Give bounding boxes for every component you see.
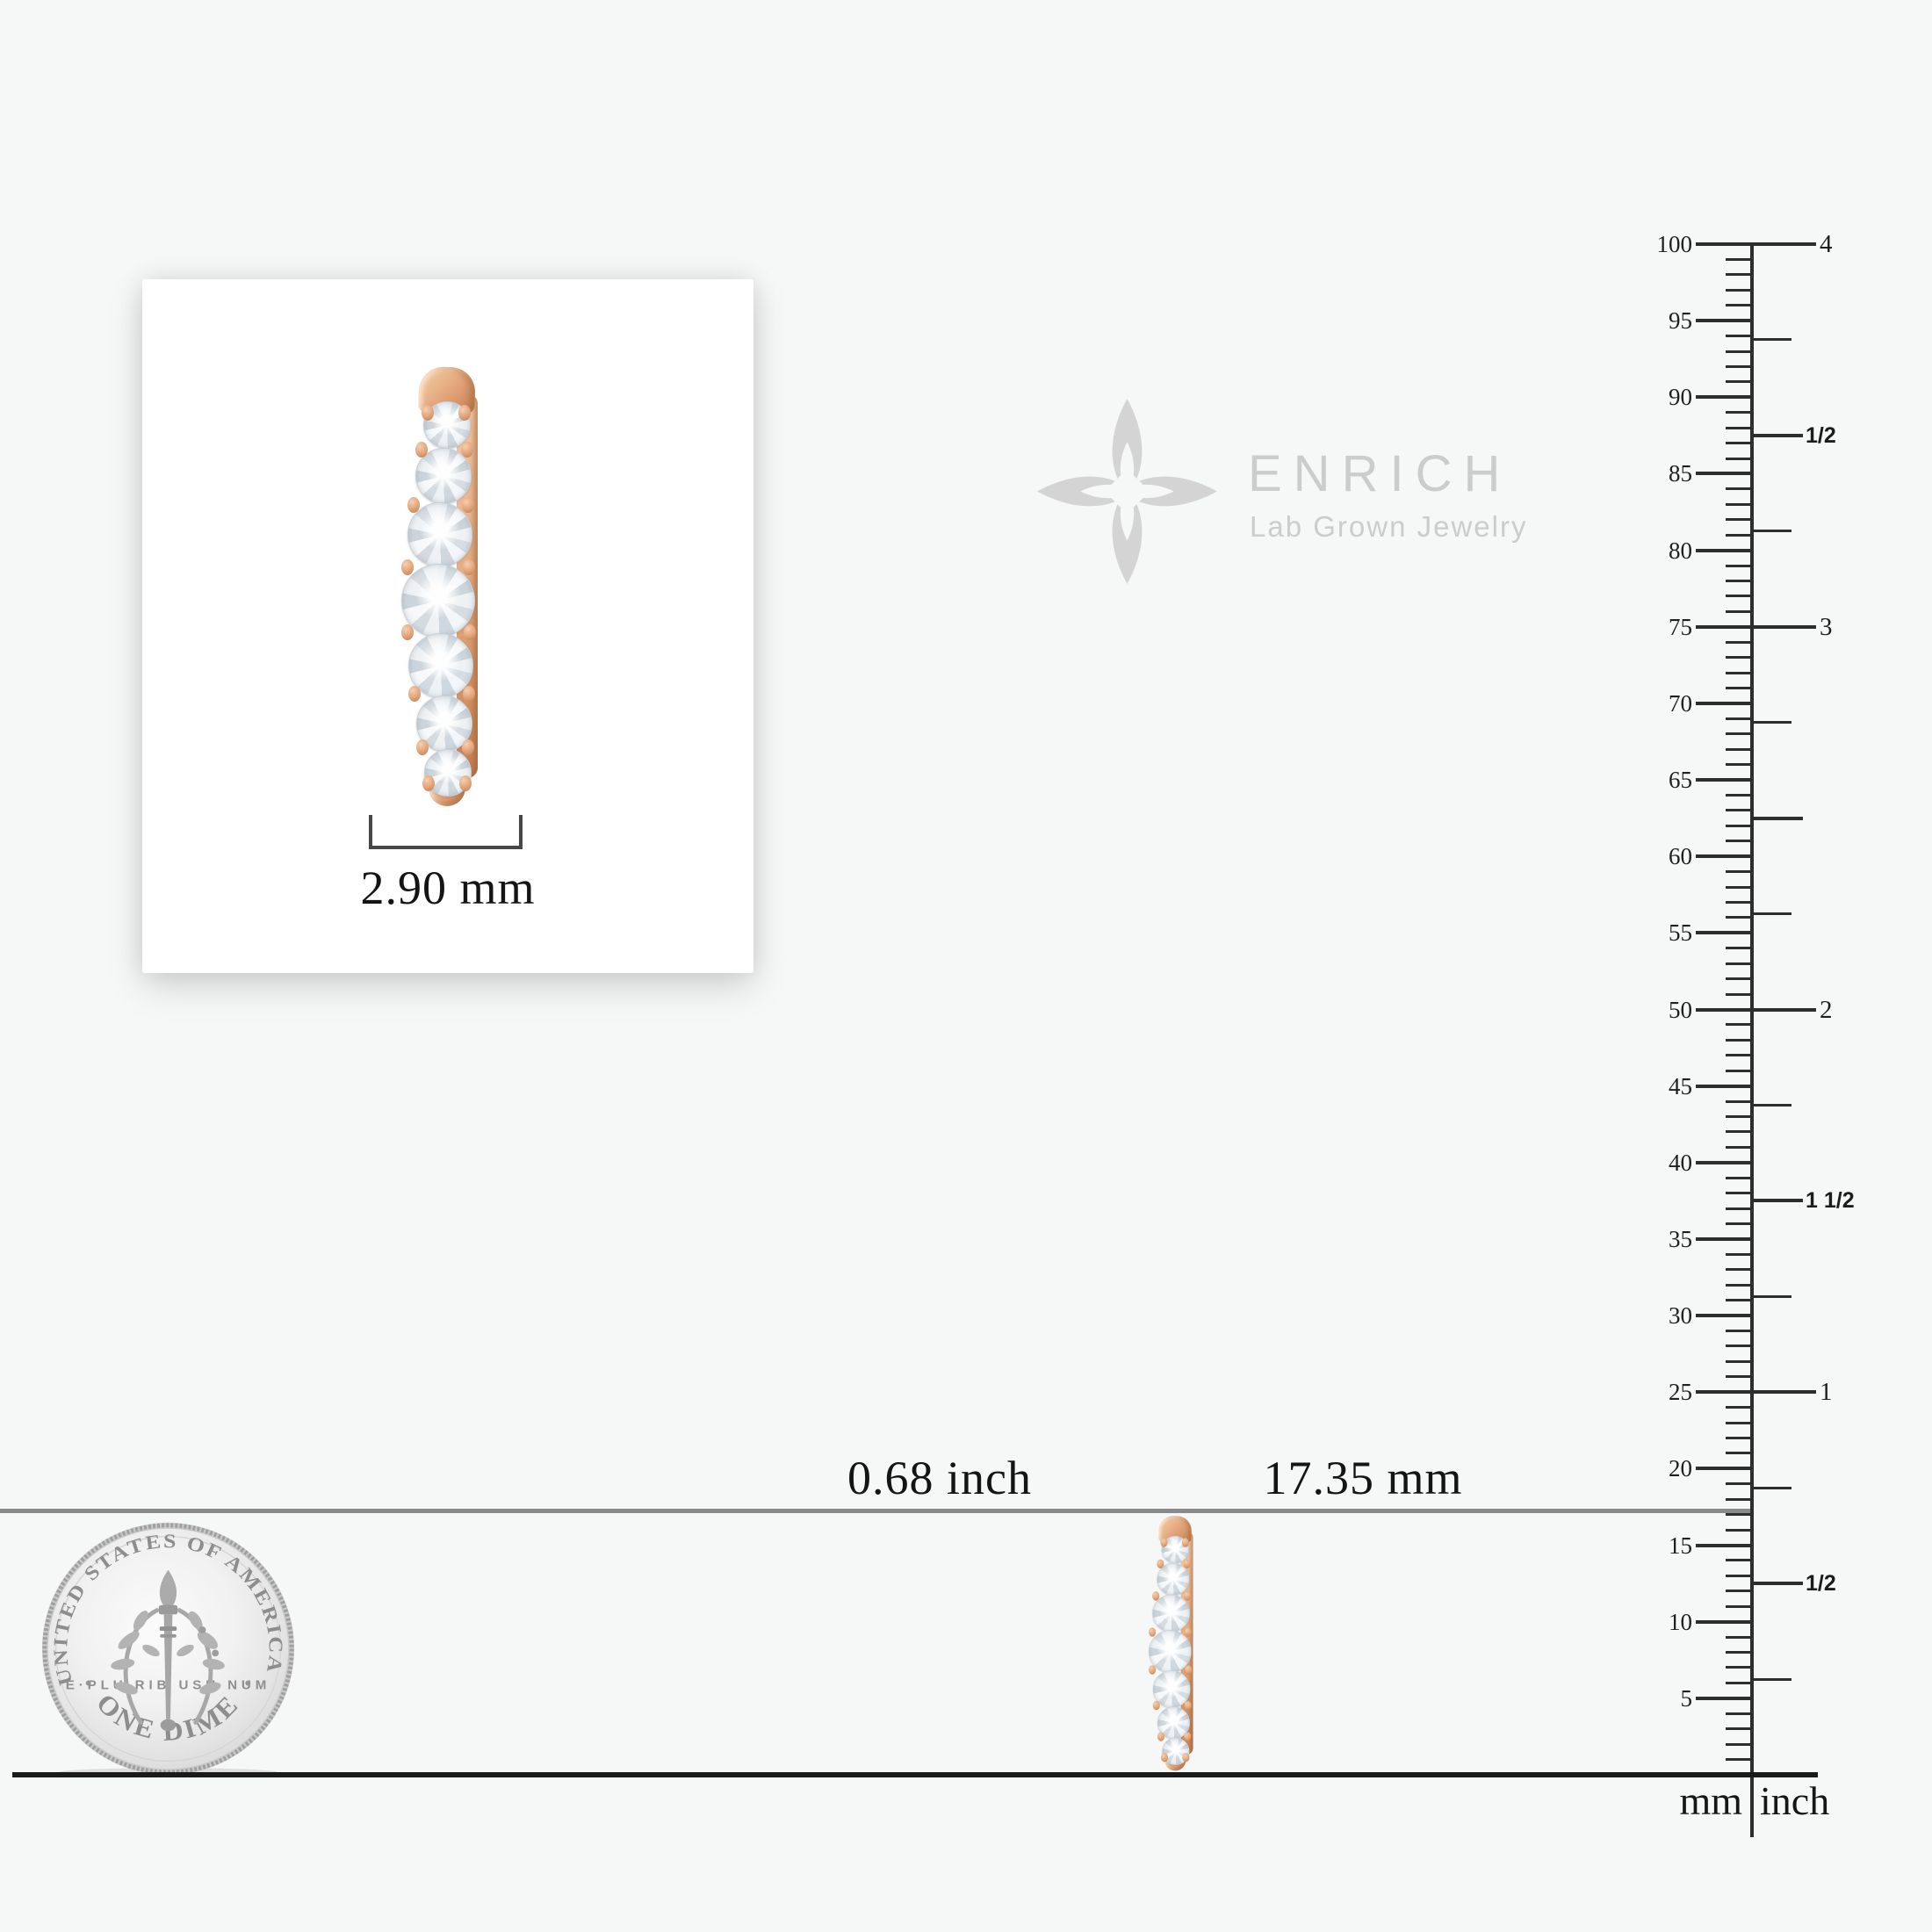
ruler-mm-minor-tick (1726, 1344, 1752, 1347)
ruler-mm-minor-tick (1726, 1330, 1752, 1332)
ruler-unit-inch: inch (1760, 1781, 1829, 1821)
baseline (12, 1772, 1818, 1777)
ruler-inch-quarter-tick (1752, 338, 1791, 341)
ruler-mm-minor-tick (1726, 380, 1752, 383)
ruler-mm-minor-tick (1726, 565, 1752, 567)
ruler-mm-number: 60 (1604, 845, 1692, 869)
ruler-mm-minor-tick (1726, 870, 1752, 873)
ruler-mm-minor-tick (1726, 1529, 1752, 1532)
ruler-mm-minor-tick (1726, 794, 1752, 797)
ruler-inch-quarter-tick (1752, 1295, 1791, 1298)
earring-prong (1184, 1591, 1191, 1600)
ruler-mm-major-tick (1696, 625, 1752, 629)
ruler-mm-minor-tick (1726, 1498, 1752, 1501)
earring-diamond (407, 502, 472, 567)
ruler-mm-minor-tick (1726, 610, 1752, 613)
ruler-inch-fraction: 1 1/2 (1806, 1190, 1855, 1212)
earring-prong (1161, 1753, 1168, 1762)
ruler-mm-minor-tick (1726, 304, 1752, 306)
ruler-mm-number: 65 (1604, 768, 1692, 792)
ruler-inch-number: 1 (1820, 1380, 1833, 1405)
brand-flower-icon (1037, 397, 1217, 586)
ruler-mm-minor-tick (1726, 487, 1752, 490)
height-reference-line (0, 1509, 1750, 1513)
ruler-mm-minor-tick (1726, 442, 1752, 444)
width-measure-bracket (369, 815, 523, 849)
ruler-mm-number: 85 (1604, 462, 1692, 486)
earring-photo-large (395, 364, 492, 811)
ruler-mm-number: 95 (1604, 309, 1692, 333)
ruler-mm-minor-tick (1726, 595, 1752, 597)
ruler-mm-minor-tick (1726, 1146, 1752, 1149)
ruler-inch-half-tick (1752, 817, 1803, 820)
ruler-mm-minor-tick (1726, 840, 1752, 842)
ruler-mm-minor-tick (1726, 825, 1752, 827)
ruler-mm-minor-tick (1726, 993, 1752, 996)
ruler-mm-minor-tick (1726, 1360, 1752, 1363)
earring-prong (1185, 1665, 1192, 1674)
ruler-mm-minor-tick (1726, 1575, 1752, 1577)
ruler-mm-minor-tick (1726, 1070, 1752, 1072)
ruler-inch-fraction: 1/2 (1806, 425, 1836, 447)
earring-diamond (401, 564, 475, 638)
ruler-mm-minor-tick (1726, 1268, 1752, 1271)
ruler-mm-major-tick (1696, 1314, 1752, 1317)
ruler-mm-major-tick (1696, 1161, 1752, 1164)
ruler-mm-minor-tick (1726, 1115, 1752, 1118)
earring-prong (1157, 1732, 1164, 1741)
earring-prong (1160, 1538, 1167, 1546)
ruler-mm-minor-tick (1726, 1590, 1752, 1592)
earring-prong (401, 624, 414, 640)
ruler-mm-minor-tick (1726, 1253, 1752, 1256)
ruler-inch-half-tick (1752, 434, 1803, 437)
ruler-mm-number: 75 (1604, 616, 1692, 639)
ruler-mm-number: 40 (1604, 1151, 1692, 1175)
ruler-unit-mm: mm (1609, 1781, 1742, 1821)
ruler-inch-quarter-tick (1752, 1104, 1791, 1107)
ruler-mm-minor-tick (1726, 1222, 1752, 1225)
ruler-mm-major-tick (1696, 1467, 1752, 1470)
ruler-inch-whole-tick (1752, 625, 1816, 629)
earring-prong (463, 686, 475, 702)
brand-tagline: Lab Grown Jewelry (1250, 510, 1527, 544)
ruler-inch-number: 2 (1820, 998, 1833, 1023)
ruler-mm-number: 80 (1604, 539, 1692, 563)
ruler-mm-minor-tick (1726, 916, 1752, 919)
earring-prong (415, 442, 428, 458)
ruler-mm-minor-tick (1726, 1712, 1752, 1715)
ruler-mm-minor-tick (1726, 672, 1752, 674)
ruler-inch-quarter-tick (1752, 1487, 1791, 1489)
ruler-mm-major-tick (1696, 702, 1752, 705)
ruler-mm-minor-tick (1726, 641, 1752, 644)
earring-prong (463, 559, 475, 575)
ruler-mm-number: 15 (1604, 1534, 1692, 1558)
ruler-inch-half-tick (1752, 1199, 1803, 1202)
ruler-mm-minor-tick (1726, 518, 1752, 521)
earring-prong (401, 559, 414, 575)
ruler-mm-minor-tick (1726, 1758, 1752, 1761)
earring-prong (416, 739, 429, 755)
ruler-mm-major-tick (1696, 854, 1752, 858)
ruler-inch-number: 3 (1820, 615, 1833, 640)
earring-prong (1185, 1627, 1192, 1636)
ruler-mm-minor-tick (1726, 1406, 1752, 1409)
ruler-mm-minor-tick (1726, 687, 1752, 689)
ruler-inch-quarter-tick (1752, 721, 1791, 724)
ruler-mm-minor-tick (1726, 1192, 1752, 1194)
ruler-mm-minor-tick (1726, 809, 1752, 811)
ruler-mm-minor-tick (1726, 350, 1752, 353)
ruler-mm-major-tick (1696, 472, 1752, 475)
earring-prong (1182, 1753, 1189, 1762)
ruler-mm-minor-tick (1726, 1437, 1752, 1439)
ruler-mm-number: 5 (1604, 1687, 1692, 1711)
earring-prong (458, 405, 471, 421)
ruler-mm-minor-tick (1726, 1651, 1752, 1654)
ruler-inch-whole-tick (1752, 242, 1816, 246)
ruler-mm-minor-tick (1726, 1054, 1752, 1056)
earring-prong (1149, 1665, 1156, 1674)
ruler-mm-major-tick (1696, 1697, 1752, 1700)
ruler-mm-number: 10 (1604, 1611, 1692, 1634)
ruler-mm-major-tick (1696, 1620, 1752, 1624)
ruler-mm-number: 100 (1604, 233, 1692, 256)
ruler-mm-number: 50 (1604, 998, 1692, 1022)
ruler-mm-major-tick (1696, 549, 1752, 552)
ruler-mm-number: 90 (1604, 386, 1692, 409)
ruler-mm-minor-tick (1726, 886, 1752, 889)
ruler-mm-minor-tick (1726, 1666, 1752, 1669)
earring-photo-small (1145, 1514, 1201, 1774)
ruler-mm-minor-tick (1726, 1422, 1752, 1424)
ruler-mm-minor-tick (1726, 763, 1752, 766)
ruler-inch-quarter-tick (1752, 530, 1791, 532)
ruler-mm-minor-tick (1726, 1177, 1752, 1179)
ruler-mm-number: 35 (1604, 1228, 1692, 1251)
ruler-mm-major-tick (1696, 1008, 1752, 1012)
earring-prong (422, 775, 435, 791)
ruler-mm-minor-tick (1726, 748, 1752, 751)
earring-prong (408, 686, 421, 702)
height-mm-label: 17.35 mm (1205, 1451, 1521, 1505)
earring-prong (459, 775, 472, 791)
ruler-mm-minor-tick (1726, 1130, 1752, 1133)
ruler-inch-whole-tick (1752, 1008, 1816, 1012)
ruler-mm-minor-tick (1726, 1727, 1752, 1730)
ruler-mm-minor-tick (1726, 1559, 1752, 1561)
ruler-mm-minor-tick (1726, 1207, 1752, 1210)
ruler-mm-minor-tick (1726, 1375, 1752, 1378)
ruler-mm-minor-tick (1726, 1452, 1752, 1454)
ruler-mm-minor-tick (1726, 365, 1752, 368)
ruler-mm-minor-tick (1726, 1100, 1752, 1103)
ruler-mm-minor-tick (1726, 1023, 1752, 1026)
ruler-mm-number: 55 (1604, 921, 1692, 945)
ruler-mm-minor-tick (1726, 580, 1752, 582)
ruler-mm-minor-tick (1726, 503, 1752, 506)
brand-name: ENRICH (1248, 444, 1511, 503)
ruler-inch-quarter-tick (1752, 912, 1791, 915)
ruler-mm-major-tick (1696, 1085, 1752, 1088)
ruler-inch-quarter-tick (1752, 1678, 1791, 1681)
height-inch-label: 0.68 inch (782, 1451, 1098, 1505)
width-measurement-label: 2.90 mm (290, 861, 606, 915)
ruler-mm-minor-tick (1726, 977, 1752, 980)
ruler-mm-number: 25 (1604, 1381, 1692, 1404)
ruler-mm-major-tick (1696, 1390, 1752, 1394)
ruler-mm-minor-tick (1726, 534, 1752, 537)
ruler-mm-minor-tick (1726, 1039, 1752, 1042)
ruler-mm-minor-tick (1726, 962, 1752, 965)
earring-prong (1182, 1538, 1189, 1546)
page: 2.90 mm ENRICH Lab Grown Jewelry 0.68 in… (0, 0, 1932, 1932)
ruler-mm-minor-tick (1726, 427, 1752, 429)
ruler-mm-minor-tick (1726, 1299, 1752, 1301)
ruler-mm-minor-tick (1726, 1743, 1752, 1746)
ruler-inch-fraction: 1/2 (1806, 1573, 1836, 1595)
ruler-mm-minor-tick (1726, 1636, 1752, 1639)
ruler-mm-major-tick (1696, 931, 1752, 934)
ruler-mm-minor-tick (1726, 411, 1752, 414)
ruler-mm-minor-tick (1726, 901, 1752, 904)
ruler-mm-major-tick (1696, 778, 1752, 782)
ruler-mm-major-tick (1696, 1544, 1752, 1547)
ruler-mm-minor-tick (1726, 273, 1752, 276)
ruler-mm-minor-tick (1726, 289, 1752, 292)
ruler-mm-minor-tick (1726, 258, 1752, 261)
earring-prong (1152, 1591, 1159, 1600)
ruler-mm-minor-tick (1726, 458, 1752, 460)
ruler-mm-number: 70 (1604, 692, 1692, 716)
ruler-mm-minor-tick (1726, 732, 1752, 735)
earring-prong (464, 624, 476, 640)
ruler-mm-minor-tick (1726, 656, 1752, 659)
ruler-mm-minor-tick (1726, 1284, 1752, 1287)
ruler-mm-minor-tick (1726, 1482, 1752, 1485)
ruler-mm-major-tick (1696, 319, 1752, 322)
earring-prong (1185, 1701, 1192, 1710)
ruler-mm-major-tick (1696, 242, 1752, 246)
ruler-mm-minor-tick (1726, 1513, 1752, 1516)
ruler-mm-number: 20 (1604, 1457, 1692, 1481)
ruler-mm-minor-tick (1726, 717, 1752, 720)
earring-prong (1153, 1701, 1160, 1710)
earring-diamond (1152, 1595, 1190, 1633)
ruler-mm-major-tick (1696, 395, 1752, 399)
earring-prong (422, 405, 434, 421)
ruler-mm-minor-tick (1726, 1682, 1752, 1684)
ruler-inch-number: 4 (1820, 232, 1833, 257)
ruler-mm-number: 30 (1604, 1304, 1692, 1328)
earring-prong (407, 497, 420, 513)
dime-coin: UNITED STATES OF AMERICA ONE DIME E·PLU … (40, 1520, 297, 1777)
earring-prong (1149, 1627, 1156, 1636)
ruler-mm-minor-tick (1726, 335, 1752, 337)
ruler-mm-minor-tick (1726, 1605, 1752, 1608)
ruler-mm-number: 45 (1604, 1075, 1692, 1099)
ruler-inch-whole-tick (1752, 1390, 1816, 1394)
ruler-mm-minor-tick (1726, 947, 1752, 949)
ruler-mm-major-tick (1696, 1237, 1752, 1241)
earring-prong (462, 497, 474, 513)
earring-prong (1157, 1560, 1164, 1568)
ruler-inch-half-tick (1752, 1582, 1803, 1585)
